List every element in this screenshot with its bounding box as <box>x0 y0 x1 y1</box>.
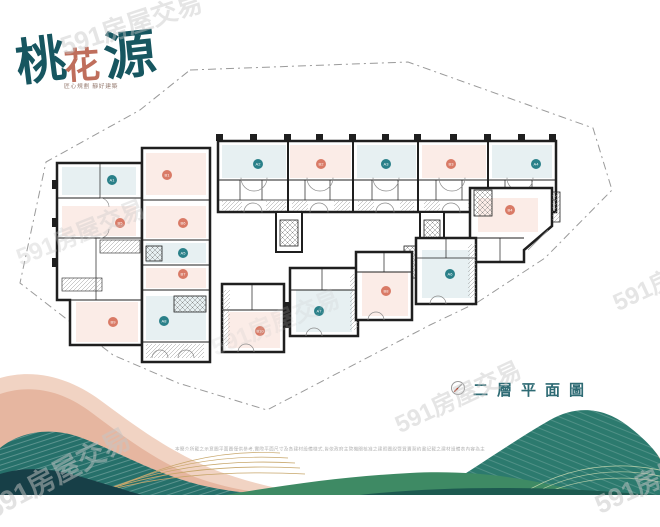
unit-badge-B5: B5 <box>115 218 125 228</box>
unit-badge-B3: B3 <box>446 159 456 169</box>
brand-logo: 桃 花 源 <box>12 28 182 108</box>
svg-text:B7: B7 <box>181 272 187 277</box>
svg-text:B6: B6 <box>181 221 187 226</box>
unit-badge-B8: B8 <box>381 286 391 296</box>
plan-title: 二層平面圖 <box>473 379 593 400</box>
svg-text:B1: B1 <box>165 173 171 178</box>
unit-badge-A7: A7 <box>314 306 324 316</box>
svg-text:A4: A4 <box>534 162 540 167</box>
unit-badge-B9: B9 <box>108 317 118 327</box>
unit-badge-B4: B4 <box>505 205 515 215</box>
unit-badge-A8: A8 <box>159 316 169 326</box>
svg-text:A3: A3 <box>384 162 390 167</box>
svg-text:B4: B4 <box>508 208 514 213</box>
building-se-unit <box>470 188 560 262</box>
disclaimer-text: 本簡介所載之示意圖平面圖僅供參考,實際平面尺寸及各建材設備樣式,皆依政府主管機關… <box>175 446 485 452</box>
unit-badge-A6: A6 <box>445 269 455 279</box>
poster-canvas: A1B1A2B2A3B3A4B4B5B6A5B7A6B8A7A8B9B10 桃 … <box>0 0 660 495</box>
brand-subtitle: 匠心規劃 靜好建築 <box>64 82 118 90</box>
mountain-waves-left <box>0 374 320 495</box>
mountain-waves-right <box>225 410 660 495</box>
svg-text:B3: B3 <box>449 162 455 167</box>
svg-text:A8: A8 <box>162 319 168 324</box>
unit-badge-B6: B6 <box>178 218 188 228</box>
compass-icon <box>452 382 465 395</box>
unit-badge-A4: A4 <box>531 159 541 169</box>
svg-text:A2: A2 <box>256 162 262 167</box>
unit-badge-B7: B7 <box>178 269 188 279</box>
svg-text:A1: A1 <box>110 178 116 183</box>
svg-text:B2: B2 <box>319 162 325 167</box>
svg-text:B10: B10 <box>256 329 264 334</box>
svg-text:A5: A5 <box>181 251 187 256</box>
unit-badge-B2: B2 <box>316 159 326 169</box>
unit-badge-A2: A2 <box>253 159 263 169</box>
svg-text:B8: B8 <box>384 289 390 294</box>
unit-badge-B1: B1 <box>162 170 172 180</box>
svg-text:A7: A7 <box>317 309 323 314</box>
unit-badge-A5: A5 <box>178 248 188 258</box>
unit-badge-B10: B10 <box>255 326 265 336</box>
brand-char-tao: 桃 <box>13 33 69 89</box>
unit-badge-A1: A1 <box>107 175 117 185</box>
svg-text:B5: B5 <box>118 221 124 226</box>
svg-text:A6: A6 <box>448 272 454 277</box>
unit-badge-A3: A3 <box>381 159 391 169</box>
svg-text:B9: B9 <box>111 320 117 325</box>
brand-char-hua: 花 <box>63 47 101 85</box>
brand-char-yuan: 源 <box>101 27 158 84</box>
